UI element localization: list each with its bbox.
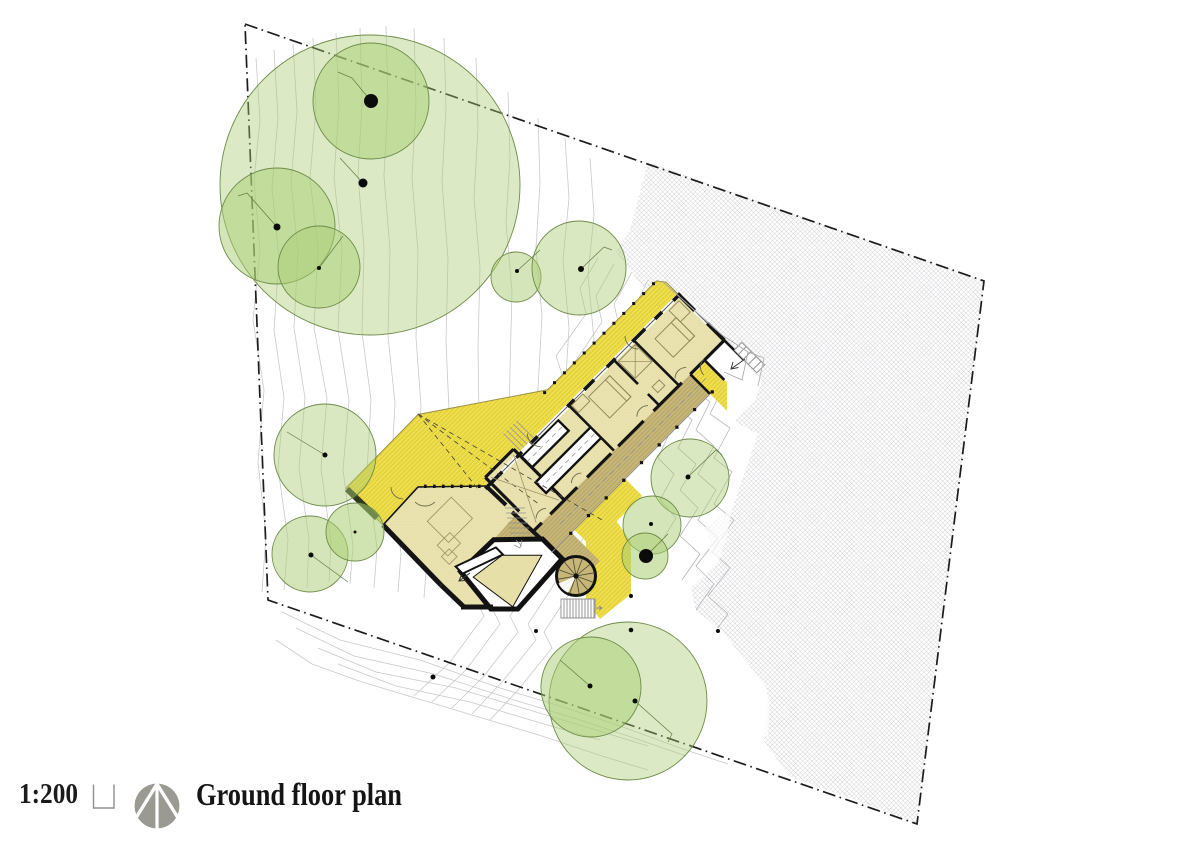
svg-text:1:200: 1:200: [19, 778, 78, 810]
svg-text:Ground floor plan: Ground floor plan: [196, 776, 402, 812]
